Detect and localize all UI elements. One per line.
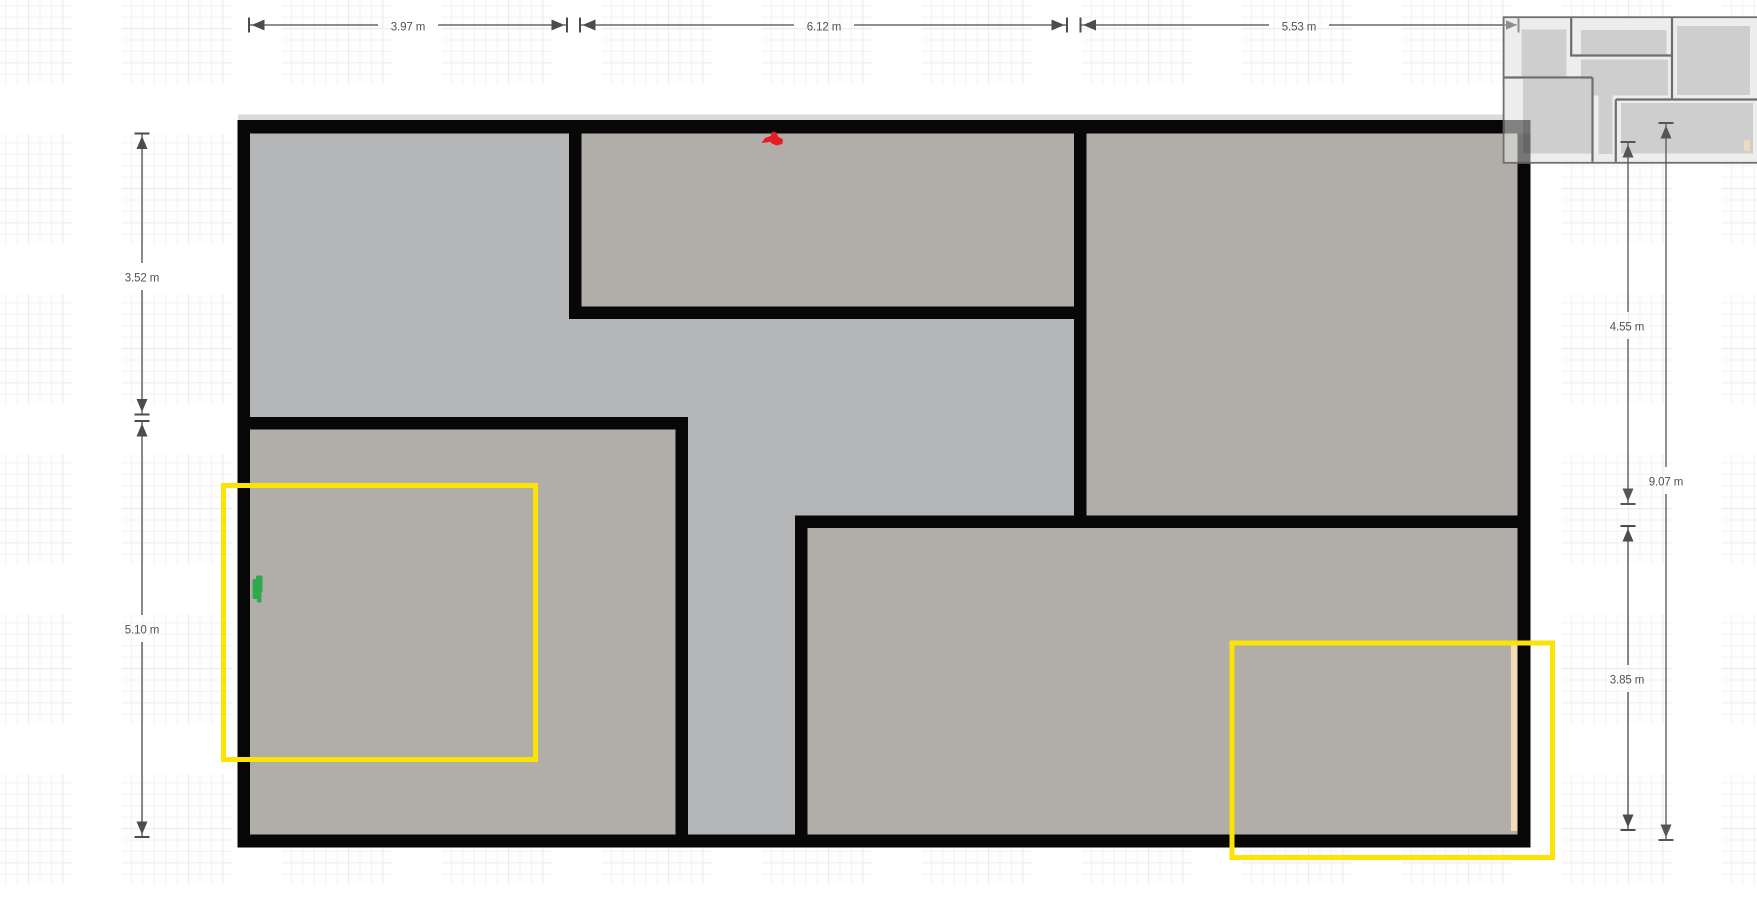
svg-text:6.12 m: 6.12 m xyxy=(807,22,842,34)
svg-text:5.10 m: 5.10 m xyxy=(125,625,160,637)
svg-text:4.55 m: 4.55 m xyxy=(1610,322,1645,334)
svg-text:3.52 m: 3.52 m xyxy=(125,273,160,285)
svg-text:9.07 m: 9.07 m xyxy=(1649,477,1684,489)
svg-text:3.85 m: 3.85 m xyxy=(1610,675,1645,687)
svg-text:3.97 m: 3.97 m xyxy=(391,22,426,34)
svg-text:5.53 m: 5.53 m xyxy=(1282,22,1317,34)
